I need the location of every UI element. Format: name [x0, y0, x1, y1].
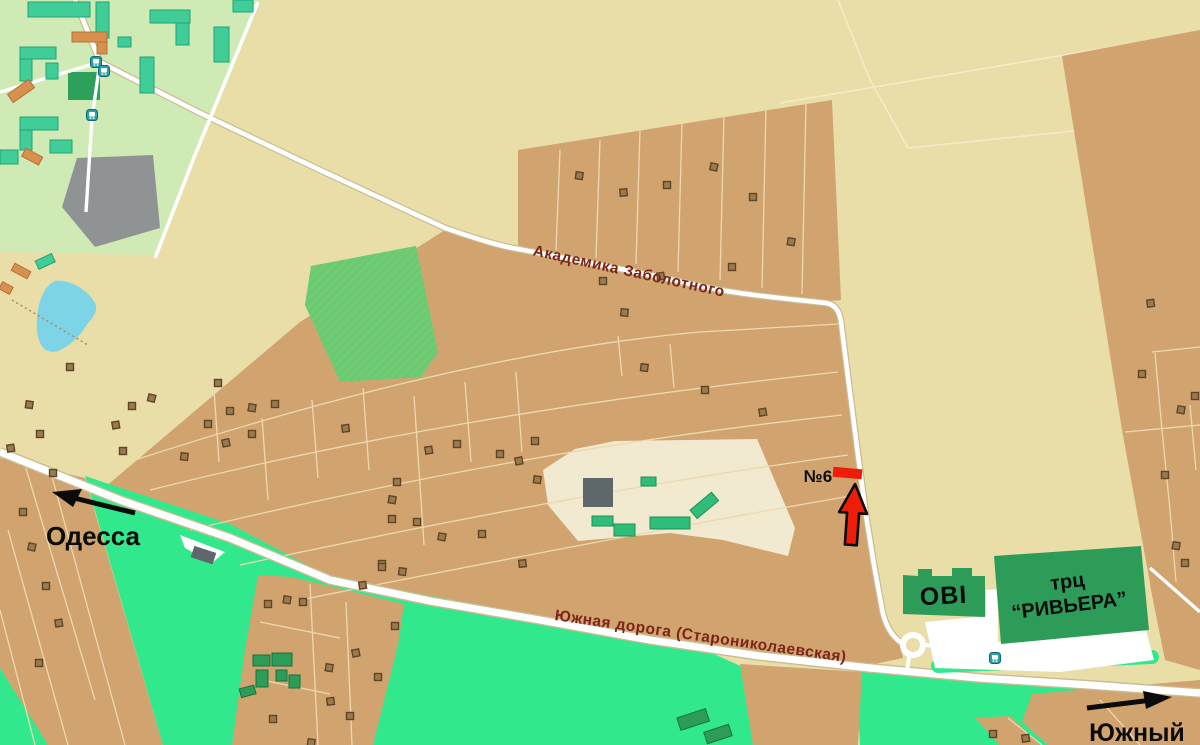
direction-label-odessa: Одесса — [46, 521, 140, 551]
warehouse-gray-building — [583, 478, 613, 507]
bus-stop-icon — [99, 66, 110, 77]
map-canvas: OBI трц “РИВЬЕРА” Академика Заболотного … — [0, 0, 1200, 745]
city-map: OBI трц “РИВЬЕРА” Академика Заболотного … — [0, 0, 1200, 745]
marker-label-no6: №6 — [804, 467, 832, 486]
mall-label-line1: трц — [1049, 569, 1086, 595]
bus-stop-icon — [87, 110, 98, 121]
plots-wedge-bottom — [740, 664, 862, 745]
obi-label: OBI — [919, 581, 968, 611]
direction-label-yuzhny: Южный — [1089, 719, 1185, 745]
bus-stop-icon — [990, 653, 1001, 664]
